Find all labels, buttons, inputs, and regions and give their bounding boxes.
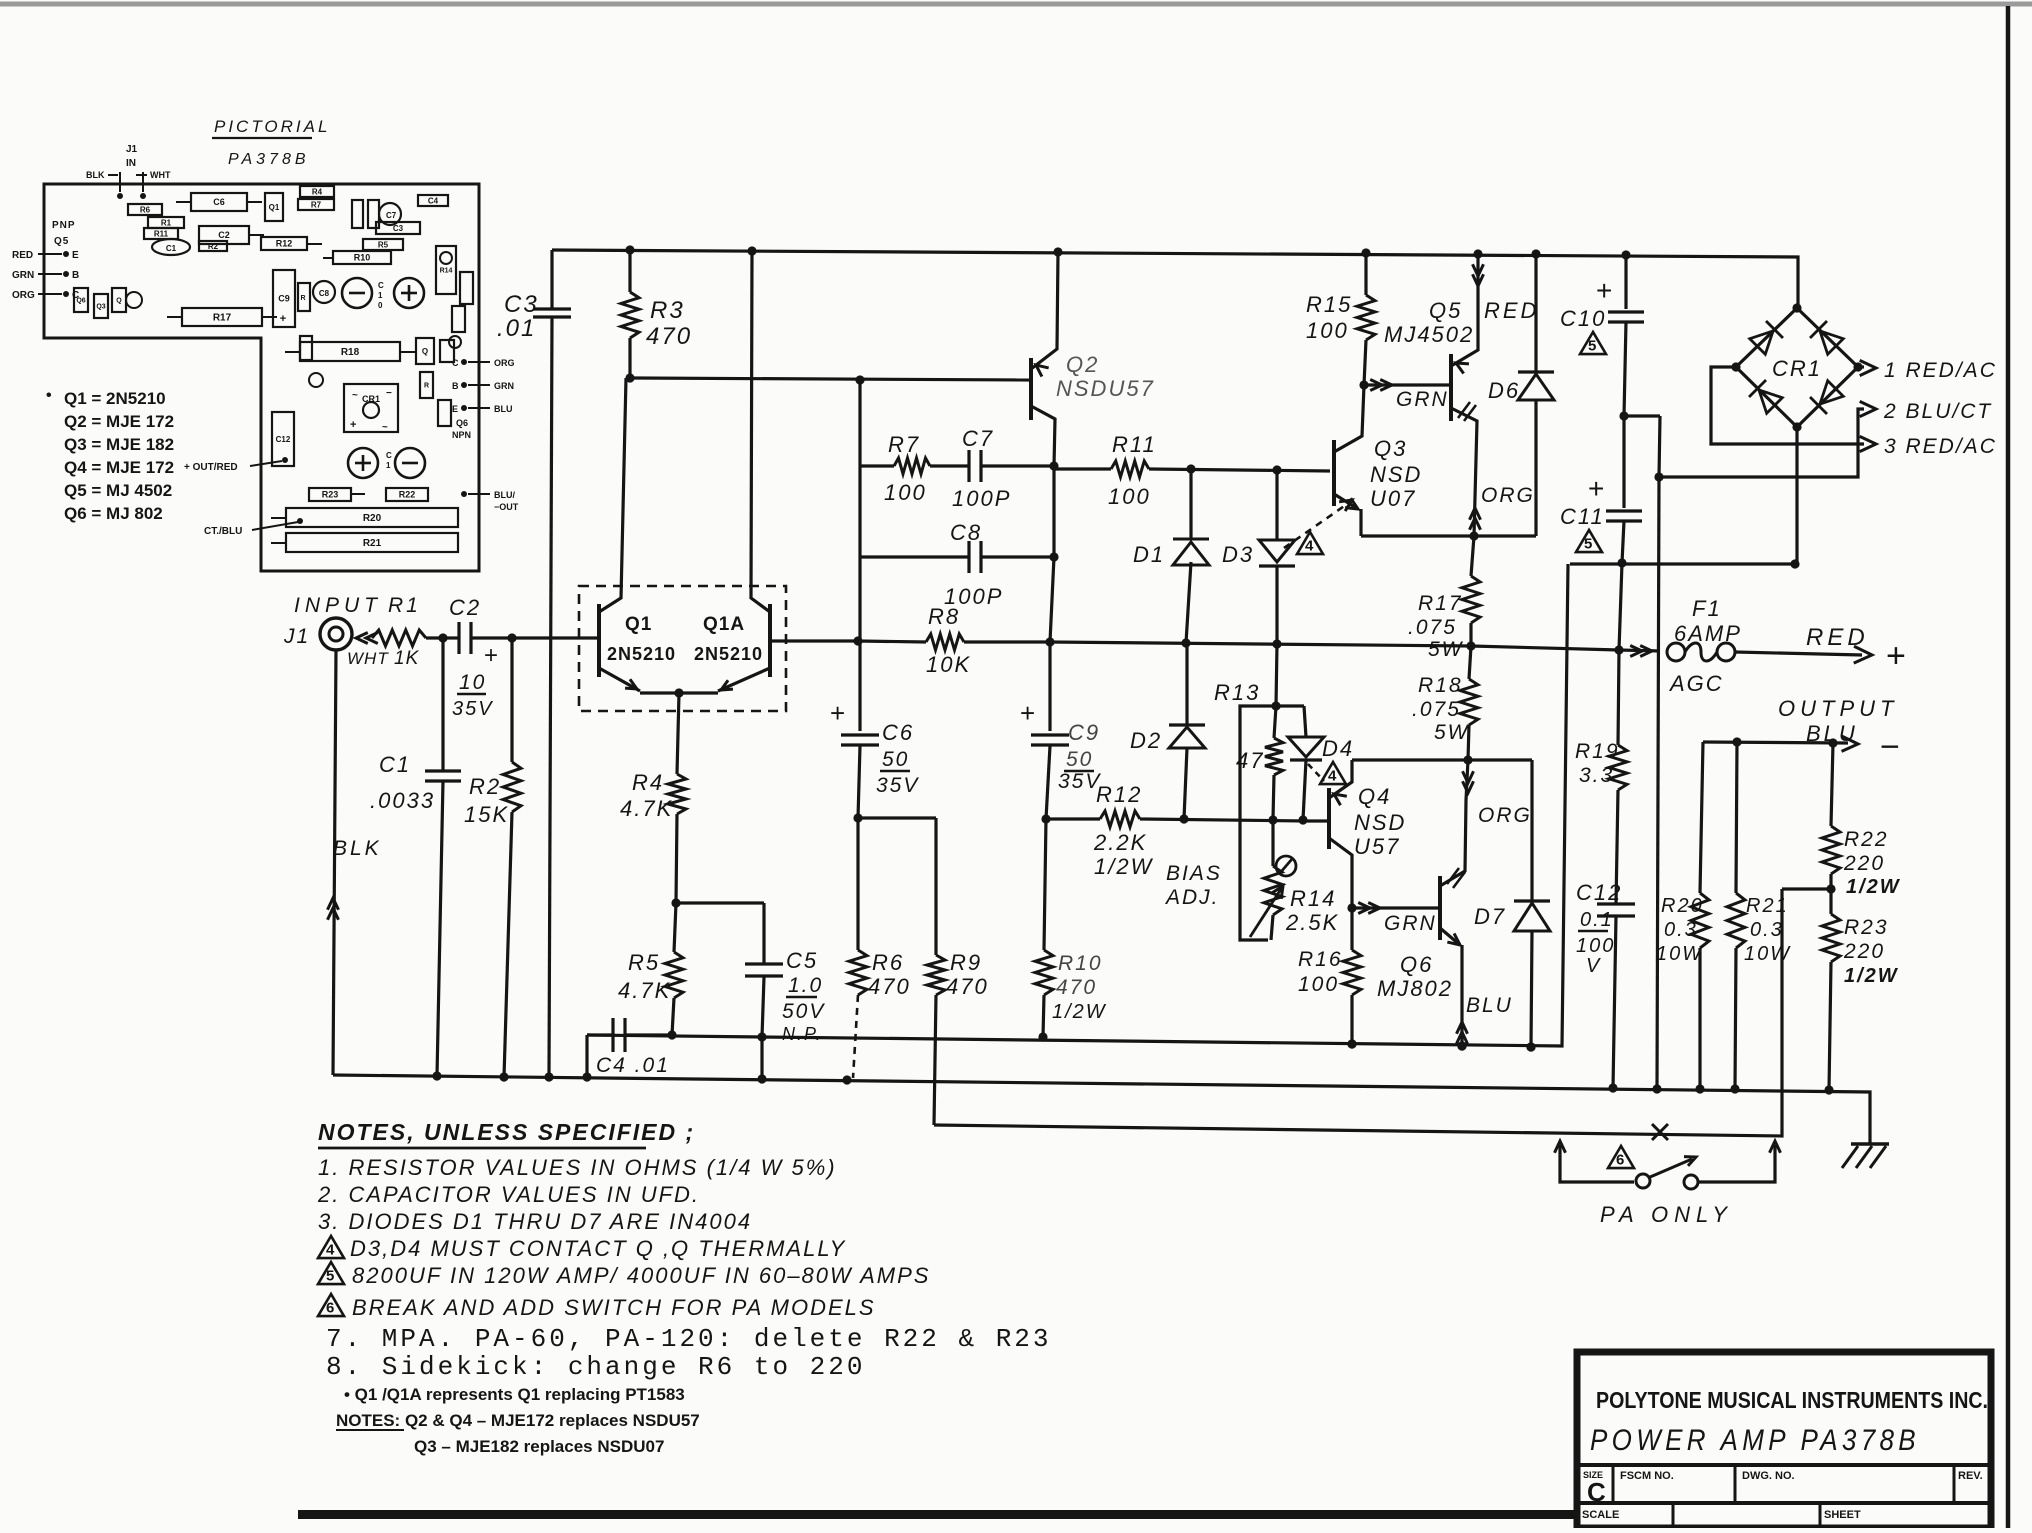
svg-text:ORG: ORG bbox=[1481, 484, 1535, 507]
svg-text:0: 0 bbox=[378, 301, 384, 310]
svg-text:PNP: PNP bbox=[52, 220, 76, 231]
svg-text:C8: C8 bbox=[319, 289, 330, 298]
svg-text:F1: F1 bbox=[1692, 596, 1722, 621]
svg-text:R22: R22 bbox=[1844, 828, 1889, 851]
svg-text:5: 5 bbox=[1588, 338, 1596, 355]
svg-text:470: 470 bbox=[946, 974, 989, 999]
svg-text:R23: R23 bbox=[1844, 916, 1889, 939]
svg-text:R11: R11 bbox=[1112, 432, 1157, 457]
svg-text:NSD: NSD bbox=[1370, 462, 1422, 487]
svg-text:4: 4 bbox=[1328, 768, 1337, 785]
svg-text:+: + bbox=[1886, 637, 1908, 675]
svg-text:100: 100 bbox=[1108, 484, 1151, 509]
svg-text:D4: D4 bbox=[1322, 736, 1354, 761]
svg-text:V: V bbox=[1586, 955, 1601, 977]
svg-text:1/2W: 1/2W bbox=[1052, 1001, 1107, 1023]
svg-text:R20: R20 bbox=[363, 513, 382, 524]
svg-text:R6: R6 bbox=[140, 205, 151, 214]
svg-text:Q2: Q2 bbox=[1066, 352, 1099, 377]
svg-text:NOTES, UNLESS SPECIFIED ;: NOTES, UNLESS SPECIFIED ; bbox=[318, 1119, 695, 1145]
svg-text:+: + bbox=[1596, 275, 1614, 306]
svg-text:1: 1 bbox=[378, 291, 384, 300]
svg-text:C9: C9 bbox=[1068, 720, 1100, 745]
svg-text:D3,D4 MUST CONTACT Q ,Q T: D3,D4 MUST CONTACT Q ,Q THERMALLY bbox=[350, 1236, 846, 1261]
svg-text:GRN: GRN bbox=[1396, 388, 1449, 411]
svg-text:J1: J1 bbox=[126, 144, 138, 155]
svg-text:50: 50 bbox=[882, 748, 909, 771]
svg-text:R12: R12 bbox=[1096, 782, 1142, 807]
svg-text:J1: J1 bbox=[283, 625, 310, 648]
svg-text:R18: R18 bbox=[1418, 674, 1463, 697]
svg-text:Q3: Q3 bbox=[96, 304, 105, 311]
svg-text:PA ONLY: PA ONLY bbox=[1600, 1202, 1733, 1227]
svg-text:Q: Q bbox=[422, 347, 428, 356]
svg-text:U57: U57 bbox=[1354, 834, 1400, 859]
svg-text:5: 5 bbox=[1584, 536, 1592, 553]
svg-text:FSCM NO.: FSCM NO. bbox=[1620, 1470, 1674, 1482]
svg-text:R6: R6 bbox=[872, 950, 904, 975]
svg-text:35V: 35V bbox=[452, 698, 494, 720]
svg-text:BLU: BLU bbox=[1466, 994, 1513, 1017]
svg-text:R1: R1 bbox=[388, 594, 421, 617]
svg-text:NSDU57: NSDU57 bbox=[1056, 376, 1155, 401]
svg-text:DWG. NO.: DWG. NO. bbox=[1742, 1470, 1795, 1482]
svg-text:0.1: 0.1 bbox=[1580, 909, 1614, 931]
svg-text:R16: R16 bbox=[1298, 948, 1343, 971]
svg-text:Q5 = MJ 4502: Q5 = MJ 4502 bbox=[64, 481, 172, 500]
svg-text:R23: R23 bbox=[322, 490, 339, 500]
svg-text:4: 4 bbox=[1305, 538, 1314, 555]
svg-text:2.5K: 2.5K bbox=[1285, 910, 1339, 935]
svg-text:+: + bbox=[280, 313, 288, 325]
svg-text:1 RED/AC: 1 RED/AC bbox=[1884, 359, 1997, 382]
svg-text:PICTORIAL: PICTORIAL bbox=[214, 117, 330, 136]
svg-text:~: ~ bbox=[382, 422, 390, 433]
svg-text:•: • bbox=[46, 387, 54, 404]
svg-text:8200UF IN 120W AMP/ 4000UF: 8200UF IN 120W AMP/ 4000UF IN 60–80W AMP… bbox=[352, 1263, 930, 1288]
svg-text:R22: R22 bbox=[399, 490, 416, 500]
svg-text:R9: R9 bbox=[950, 950, 982, 975]
svg-text:N.P.: N.P. bbox=[782, 1024, 823, 1044]
svg-text:R7: R7 bbox=[311, 200, 322, 209]
svg-text:SCALE: SCALE bbox=[1582, 1509, 1619, 1521]
svg-text:POLYTONE MUSICAL INSTRUMENTS I: POLYTONE MUSICAL INSTRUMENTS INC. bbox=[1596, 1387, 1988, 1413]
svg-text:100: 100 bbox=[1576, 935, 1615, 957]
svg-text:PA378B: PA378B bbox=[228, 151, 310, 168]
svg-text:ORG: ORG bbox=[1478, 804, 1532, 827]
svg-text:• Q1 /Q1A represents Q1 rep: • Q1 /Q1A represents Q1 replacing PT1583 bbox=[344, 1385, 685, 1404]
svg-text:1K: 1K bbox=[394, 648, 420, 669]
svg-text:INPUT: INPUT bbox=[294, 594, 382, 617]
svg-text:6: 6 bbox=[326, 1300, 334, 1317]
svg-text:BLU/: BLU/ bbox=[494, 490, 515, 500]
svg-text:100: 100 bbox=[884, 480, 927, 505]
svg-text:220: 220 bbox=[1843, 940, 1885, 963]
svg-text:−: − bbox=[1880, 728, 1902, 766]
svg-text:5W: 5W bbox=[1428, 638, 1464, 661]
svg-text:D3: D3 bbox=[1222, 542, 1254, 567]
svg-text:C: C bbox=[452, 358, 461, 368]
svg-text:R17: R17 bbox=[1418, 592, 1463, 615]
svg-text:4.7K: 4.7K bbox=[618, 978, 671, 1003]
svg-text:50: 50 bbox=[1066, 748, 1093, 771]
svg-text:C9: C9 bbox=[278, 294, 290, 304]
svg-text:R7: R7 bbox=[888, 432, 920, 457]
svg-text:0.3: 0.3 bbox=[1750, 919, 1784, 941]
svg-text:35V: 35V bbox=[1058, 770, 1101, 793]
svg-text:C2: C2 bbox=[218, 230, 230, 240]
svg-text:100P: 100P bbox=[952, 486, 1011, 511]
svg-text:1/2W: 1/2W bbox=[1844, 965, 1899, 987]
svg-text:C10: C10 bbox=[1560, 306, 1606, 331]
svg-text:+: + bbox=[484, 642, 500, 669]
svg-text:3. DIODES D1 THRU D7 ARE: 3. DIODES D1 THRU D7 ARE IN4004 bbox=[318, 1209, 752, 1234]
svg-text:C1: C1 bbox=[166, 244, 177, 253]
svg-text:2 BLU/CT: 2 BLU/CT bbox=[1883, 400, 1992, 423]
svg-text:5: 5 bbox=[326, 1268, 334, 1285]
svg-text:C3: C3 bbox=[393, 224, 404, 233]
svg-text:R2: R2 bbox=[208, 242, 219, 251]
svg-text:.01: .01 bbox=[497, 315, 536, 342]
svg-text:R21: R21 bbox=[1746, 895, 1789, 917]
svg-text:Q: Q bbox=[116, 298, 122, 305]
svg-text:Q4 = MJE 172: Q4 = MJE 172 bbox=[64, 458, 174, 477]
svg-text:R10: R10 bbox=[1058, 952, 1103, 975]
svg-text:8. Sidekick: change R6 to 220: 8. Sidekick: change R6 to 220 bbox=[326, 1352, 865, 1382]
svg-text:C12: C12 bbox=[276, 435, 291, 444]
svg-text:R15: R15 bbox=[1306, 292, 1352, 317]
svg-text:Q6: Q6 bbox=[456, 418, 468, 428]
svg-text:C4: C4 bbox=[428, 196, 439, 205]
svg-text:−OUT: −OUT bbox=[494, 502, 519, 512]
svg-text:50V: 50V bbox=[782, 1000, 825, 1023]
svg-text:R10: R10 bbox=[354, 253, 371, 263]
svg-text:BLU: BLU bbox=[494, 404, 513, 414]
svg-text:C6: C6 bbox=[213, 197, 225, 207]
svg-text:Q4: Q4 bbox=[1358, 784, 1391, 809]
svg-text:2N5210: 2N5210 bbox=[694, 644, 763, 664]
svg-text:SHEET: SHEET bbox=[1824, 1509, 1861, 1521]
svg-text:6: 6 bbox=[1616, 1152, 1624, 1169]
svg-text:E: E bbox=[72, 250, 81, 261]
svg-text:C5: C5 bbox=[786, 948, 818, 973]
svg-text:R19: R19 bbox=[1575, 740, 1620, 763]
svg-text:GRN: GRN bbox=[1384, 912, 1437, 935]
svg-text:RED: RED bbox=[1806, 624, 1869, 651]
svg-text:R20: R20 bbox=[1661, 895, 1704, 917]
svg-text:R11: R11 bbox=[154, 229, 169, 238]
svg-text:7. MPA. PA-60, PA-120: delete: 7. MPA. PA-60, PA-120: delete R22 & R23 bbox=[326, 1324, 1052, 1354]
svg-text:GRN: GRN bbox=[12, 270, 34, 281]
svg-text:C4 .01: C4 .01 bbox=[596, 1054, 670, 1077]
svg-text:BLU: BLU bbox=[1806, 721, 1858, 746]
svg-text:Q2 = MJE 172: Q2 = MJE 172 bbox=[64, 412, 174, 431]
svg-text:Q1A: Q1A bbox=[703, 614, 745, 635]
svg-text:.075: .075 bbox=[1412, 698, 1461, 721]
svg-text:R: R bbox=[424, 383, 429, 390]
svg-text:GRN: GRN bbox=[494, 381, 514, 391]
svg-text:R12: R12 bbox=[276, 239, 293, 249]
svg-text:Q1 = 2N5210: Q1 = 2N5210 bbox=[64, 389, 166, 408]
svg-text:R14: R14 bbox=[440, 268, 453, 275]
svg-text:RED: RED bbox=[1484, 298, 1539, 323]
svg-text:C7: C7 bbox=[386, 211, 397, 220]
svg-text:CT./BLU: CT./BLU bbox=[204, 526, 242, 537]
svg-text:AGC: AGC bbox=[1668, 671, 1724, 696]
svg-text:10W: 10W bbox=[1656, 943, 1703, 965]
svg-text:1: 1 bbox=[386, 461, 392, 470]
svg-text:470: 470 bbox=[868, 974, 911, 999]
svg-text:R4: R4 bbox=[312, 187, 323, 196]
svg-text:POWER AMP PA378B: POWER AMP PA378B bbox=[1590, 1424, 1920, 1457]
svg-text:Q3 = MJE 182: Q3 = MJE 182 bbox=[64, 435, 174, 454]
svg-text:1.0: 1.0 bbox=[788, 974, 823, 997]
svg-text:4.7K: 4.7K bbox=[620, 796, 673, 821]
svg-text:3 RED/AC: 3 RED/AC bbox=[1884, 435, 1997, 458]
svg-text:1. RESISTOR VALUES IN OHMS (: 1. RESISTOR VALUES IN OHMS (1/4 W 5%) bbox=[318, 1155, 837, 1180]
svg-text:U07: U07 bbox=[1370, 486, 1416, 511]
svg-text:0.3: 0.3 bbox=[1664, 919, 1698, 941]
svg-text:2N5210: 2N5210 bbox=[607, 644, 676, 664]
svg-text:C3: C3 bbox=[504, 291, 539, 318]
svg-text:.0033: .0033 bbox=[370, 788, 435, 813]
svg-text:10: 10 bbox=[459, 671, 486, 694]
svg-text:NPN: NPN bbox=[452, 430, 471, 440]
svg-text:R14: R14 bbox=[1290, 886, 1336, 911]
svg-text:C6: C6 bbox=[882, 720, 914, 745]
svg-text:C12: C12 bbox=[1576, 880, 1622, 905]
svg-text:100: 100 bbox=[1298, 973, 1339, 996]
svg-text:~: ~ bbox=[352, 390, 360, 401]
svg-text:10W: 10W bbox=[1744, 943, 1791, 965]
svg-text:Q6: Q6 bbox=[76, 298, 85, 305]
svg-text:MJ802: MJ802 bbox=[1377, 976, 1453, 1001]
svg-text:D1: D1 bbox=[1133, 542, 1165, 567]
svg-text:B: B bbox=[72, 270, 81, 281]
svg-text:470: 470 bbox=[1056, 976, 1097, 999]
svg-text:BREAK AND ADD SWITCH FOR P: BREAK AND ADD SWITCH FOR PA MODELS bbox=[352, 1295, 876, 1320]
svg-text:C1: C1 bbox=[379, 752, 411, 777]
svg-text:R3: R3 bbox=[650, 297, 685, 324]
svg-text:R1: R1 bbox=[161, 218, 172, 227]
svg-text:C2: C2 bbox=[449, 595, 481, 620]
svg-text:R18: R18 bbox=[341, 347, 360, 358]
svg-text:35V: 35V bbox=[876, 774, 919, 797]
svg-text:Q1: Q1 bbox=[625, 614, 652, 635]
svg-text:R8: R8 bbox=[928, 604, 960, 629]
svg-text:6AMP: 6AMP bbox=[1674, 621, 1742, 646]
svg-text:.075: .075 bbox=[1408, 616, 1457, 639]
svg-text:2.2K: 2.2K bbox=[1093, 830, 1147, 855]
svg-text:4: 4 bbox=[326, 1242, 335, 1259]
svg-text:IN: IN bbox=[126, 158, 136, 169]
svg-text:100: 100 bbox=[1306, 318, 1349, 343]
svg-text:C11: C11 bbox=[1560, 504, 1605, 529]
svg-text:3.3: 3.3 bbox=[1579, 764, 1614, 787]
svg-text:D6: D6 bbox=[1488, 378, 1520, 403]
svg-text:ORG: ORG bbox=[12, 290, 35, 301]
svg-text:R5: R5 bbox=[628, 950, 660, 975]
svg-text:BLK: BLK bbox=[333, 837, 382, 860]
svg-text:1/2W: 1/2W bbox=[1846, 876, 1901, 898]
svg-text:470: 470 bbox=[646, 323, 692, 350]
svg-text:BLK: BLK bbox=[86, 170, 105, 180]
svg-text:NSD: NSD bbox=[1354, 810, 1406, 835]
svg-text:C: C bbox=[386, 451, 394, 460]
svg-text:NOTES: Q2 & Q4 – MJE172 r: NOTES: Q2 & Q4 – MJE172 replaces NSDU57 bbox=[336, 1411, 700, 1430]
svg-text:WHT: WHT bbox=[150, 170, 171, 180]
svg-text:ORG: ORG bbox=[494, 358, 515, 368]
svg-text:+: + bbox=[830, 698, 847, 728]
svg-text:R5: R5 bbox=[378, 240, 389, 249]
svg-text:BIAS: BIAS bbox=[1166, 862, 1222, 885]
svg-text:R21: R21 bbox=[363, 538, 382, 549]
svg-text:Q6 = MJ 802: Q6 = MJ 802 bbox=[64, 504, 163, 523]
svg-text:ADJ.: ADJ. bbox=[1164, 886, 1220, 909]
svg-text:WHT: WHT bbox=[347, 649, 389, 668]
svg-text:R4: R4 bbox=[632, 770, 664, 795]
svg-text:R13: R13 bbox=[1214, 680, 1260, 705]
svg-text:REV.: REV. bbox=[1958, 1470, 1983, 1482]
svg-text:MJ4502: MJ4502 bbox=[1384, 322, 1474, 347]
svg-text:Q5: Q5 bbox=[54, 236, 69, 247]
svg-text:CR1: CR1 bbox=[1772, 356, 1822, 381]
svg-text:5W: 5W bbox=[1434, 721, 1470, 744]
svg-text:−: − bbox=[386, 388, 394, 399]
svg-text:10K: 10K bbox=[926, 652, 971, 677]
svg-text:RED: RED bbox=[12, 250, 33, 261]
svg-text:R2: R2 bbox=[469, 774, 501, 799]
svg-text:C: C bbox=[378, 281, 386, 290]
svg-text:Q6: Q6 bbox=[1400, 952, 1433, 977]
svg-text:R17: R17 bbox=[213, 313, 232, 324]
svg-text:OUTPUT: OUTPUT bbox=[1778, 696, 1898, 721]
svg-text:1/2W: 1/2W bbox=[1094, 854, 1154, 879]
svg-text:E: E bbox=[452, 404, 460, 414]
svg-text:15K: 15K bbox=[464, 802, 509, 827]
svg-text:+: + bbox=[350, 419, 358, 431]
svg-text:2. CAPACITOR VALUES IN UFD.: 2. CAPACITOR VALUES IN UFD. bbox=[317, 1182, 700, 1207]
svg-text:Q3 – MJE182 replaces NSDU07: Q3 – MJE182 replaces NSDU07 bbox=[414, 1437, 664, 1456]
svg-text:C8: C8 bbox=[950, 520, 982, 545]
svg-text:R: R bbox=[300, 295, 307, 302]
svg-text:Q1: Q1 bbox=[269, 203, 280, 212]
svg-text:D2: D2 bbox=[1130, 728, 1162, 753]
svg-text:+: + bbox=[1020, 698, 1037, 728]
svg-text:D7: D7 bbox=[1474, 904, 1506, 929]
svg-text:Q3: Q3 bbox=[1374, 436, 1407, 461]
svg-text:+: + bbox=[1588, 473, 1606, 504]
svg-text:Q5: Q5 bbox=[1429, 298, 1462, 323]
svg-text:B: B bbox=[452, 381, 461, 391]
svg-text:220: 220 bbox=[1843, 852, 1885, 875]
svg-text:C7: C7 bbox=[962, 426, 994, 451]
svg-text:+ OUT/RED: + OUT/RED bbox=[184, 462, 238, 473]
